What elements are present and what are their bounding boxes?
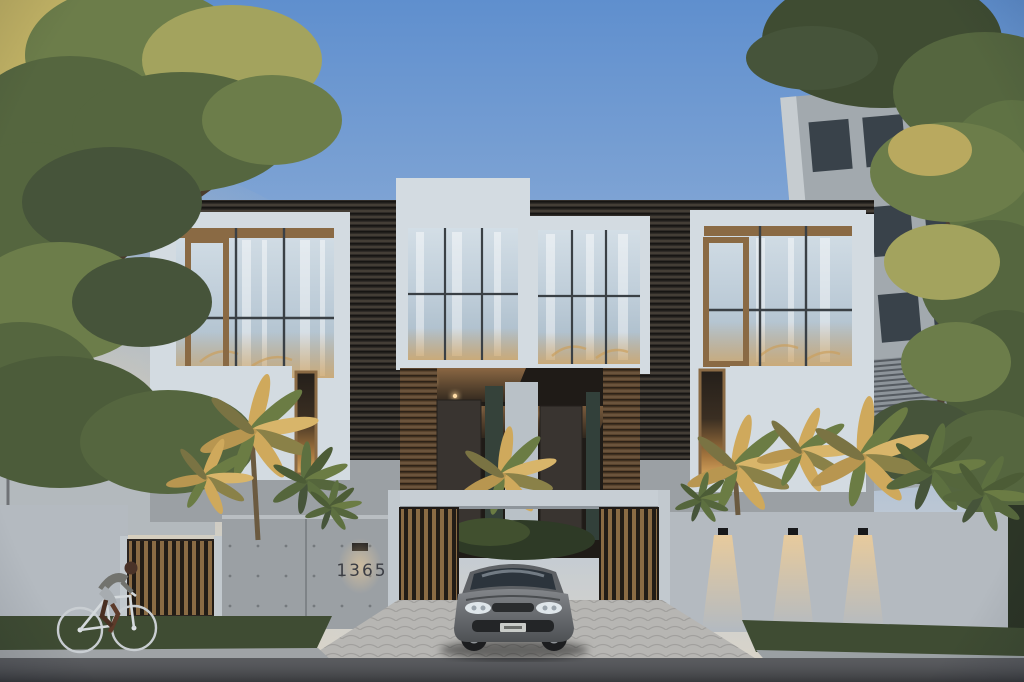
- architectural-render: 1365: [0, 0, 1024, 682]
- vignette: [0, 0, 1024, 682]
